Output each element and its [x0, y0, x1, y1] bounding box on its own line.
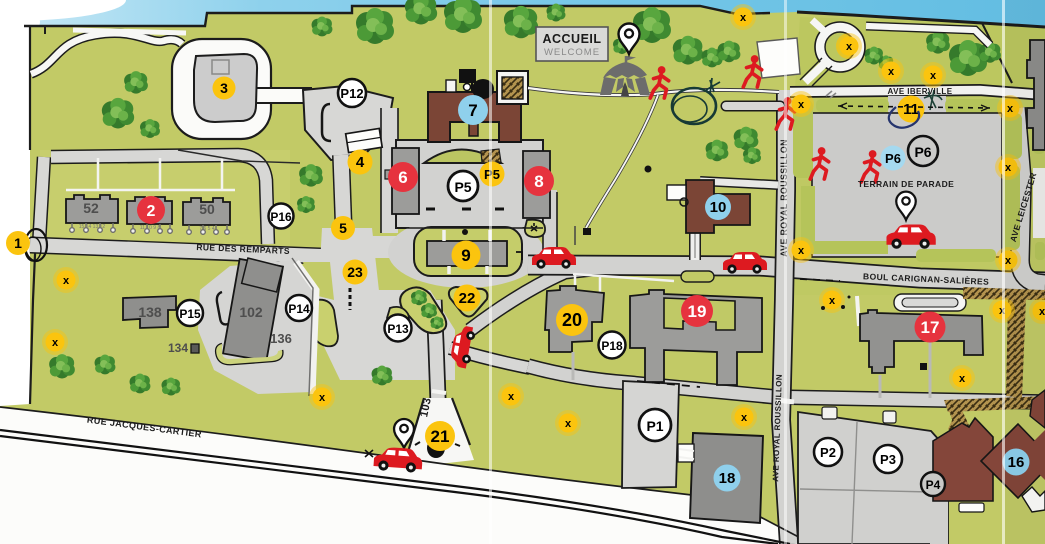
svg-text:11: 11	[903, 101, 919, 118]
svg-text:9: 9	[461, 246, 470, 265]
svg-text:23: 23	[347, 264, 363, 280]
svg-text:11 10 9 8: 11 10 9 8	[140, 225, 161, 231]
svg-text:10: 10	[710, 199, 727, 216]
svg-text:x: x	[798, 245, 805, 257]
svg-text:TERRAIN DE PARADE: TERRAIN DE PARADE	[858, 179, 954, 189]
svg-text:15 14 13 12: 15 14 13 12	[79, 224, 106, 230]
svg-text:P14: P14	[288, 302, 310, 316]
svg-text:x: x	[959, 373, 966, 385]
svg-text:P15: P15	[179, 307, 201, 321]
svg-text:P2: P2	[820, 445, 836, 460]
svg-text:P16: P16	[270, 210, 292, 224]
svg-text:x: x	[741, 412, 748, 424]
svg-text:P6: P6	[914, 144, 931, 160]
svg-text:AVE IBERVILLE: AVE IBERVILLE	[888, 87, 953, 96]
svg-text:8: 8	[534, 172, 543, 191]
svg-text:20: 20	[562, 310, 582, 330]
svg-text:ACCUEIL: ACCUEIL	[542, 32, 601, 46]
svg-text:P4: P4	[926, 478, 941, 492]
svg-text:P5: P5	[454, 179, 471, 195]
svg-text:1: 1	[14, 235, 22, 251]
svg-text:P6: P6	[885, 151, 901, 166]
svg-text:x: x	[798, 99, 805, 111]
svg-text:52: 52	[83, 200, 99, 216]
svg-text:19: 19	[688, 302, 707, 321]
svg-text:102: 102	[239, 304, 263, 320]
svg-text:x: x	[508, 391, 515, 403]
svg-text:7: 7	[468, 101, 477, 120]
svg-text:P1: P1	[646, 418, 663, 434]
svg-text:136: 136	[270, 331, 292, 346]
svg-text:x: x	[63, 275, 70, 287]
svg-text:x: x	[829, 295, 836, 307]
svg-text:x: x	[319, 392, 326, 404]
svg-text:3: 3	[220, 80, 228, 96]
svg-text:134: 134	[168, 341, 188, 355]
svg-text:x: x	[740, 12, 747, 24]
svg-text:18: 18	[719, 470, 736, 487]
svg-text:2: 2	[147, 203, 156, 220]
svg-text:P13: P13	[387, 322, 409, 336]
svg-text:6: 6	[398, 168, 407, 187]
svg-text:50: 50	[199, 201, 215, 217]
svg-text:x: x	[846, 41, 853, 53]
svg-text:P18: P18	[601, 339, 623, 353]
svg-text:22: 22	[459, 290, 476, 307]
svg-text:WELCOME: WELCOME	[544, 47, 600, 58]
svg-text:x: x	[930, 70, 937, 82]
svg-text:P12: P12	[340, 86, 363, 101]
svg-text:4: 4	[356, 154, 365, 171]
svg-text:138: 138	[138, 304, 162, 320]
svg-text:x: x	[52, 337, 59, 349]
svg-text:x: x	[565, 418, 572, 430]
svg-text:P3: P3	[880, 452, 896, 467]
svg-text:17: 17	[921, 318, 940, 337]
svg-text:x: x	[888, 66, 895, 78]
svg-text:5: 5	[339, 220, 347, 236]
svg-text:21: 21	[431, 427, 450, 446]
svg-text:7 6 5 4: 7 6 5 4	[199, 226, 215, 232]
